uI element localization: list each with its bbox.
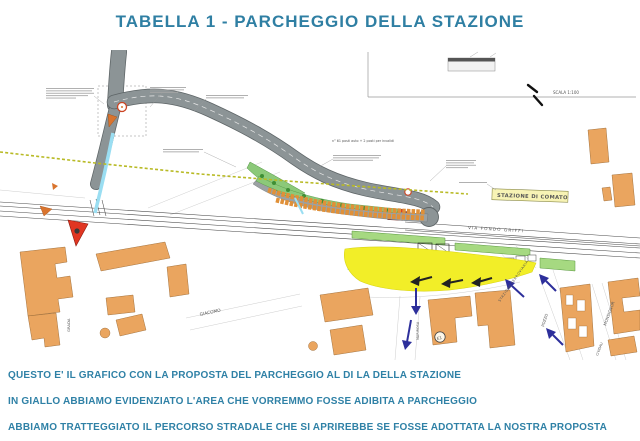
note-line-3: ABBIAMO TRATTEGGIATO IL PERCORSO STRADAL…	[8, 415, 636, 441]
site-plan-drawing: SCALA 1:100 2	[0, 50, 640, 360]
street-label-grada: GRADA	[66, 318, 71, 332]
parking-count-note: n° 61 posti auto + 2 posti per invalidi	[332, 139, 394, 143]
platform	[540, 258, 575, 271]
note-line-2: IN GIALLO ABBIAMO EVIDENZIATO L'AREA CHE…	[8, 389, 636, 415]
note-line-1: QUESTO E' IL GRAFICO CON LA PROPOSTA DEL…	[8, 363, 636, 389]
street-label-cividali: CIVIDALI	[595, 342, 604, 357]
scale-label: SCALA 1:100	[553, 90, 579, 95]
caption-notes: QUESTO E' IL GRAFICO CON LA PROPOSTA DEL…	[8, 363, 636, 441]
sheet-frame: SCALA 1:100	[368, 52, 636, 105]
site-plan-map: SCALA 1:100 2	[0, 50, 640, 360]
north-mark-icon	[528, 85, 537, 92]
street-label-marirosa: MARIROSA	[416, 321, 420, 340]
street-label-via-fondo-griffi: VIA FONDO GRIFFI	[468, 225, 524, 233]
page-title: TABELLA 1 - PARCHEGGIO DELLA STAZIONE	[0, 12, 640, 32]
street-label-giacomo: GIACOMO	[199, 308, 222, 318]
street-label-pozzo: POZZO	[540, 313, 549, 327]
scanned-proposal-page: { "title": "TABELLA 1 - PARCHEGGIO DELLA…	[0, 0, 640, 433]
